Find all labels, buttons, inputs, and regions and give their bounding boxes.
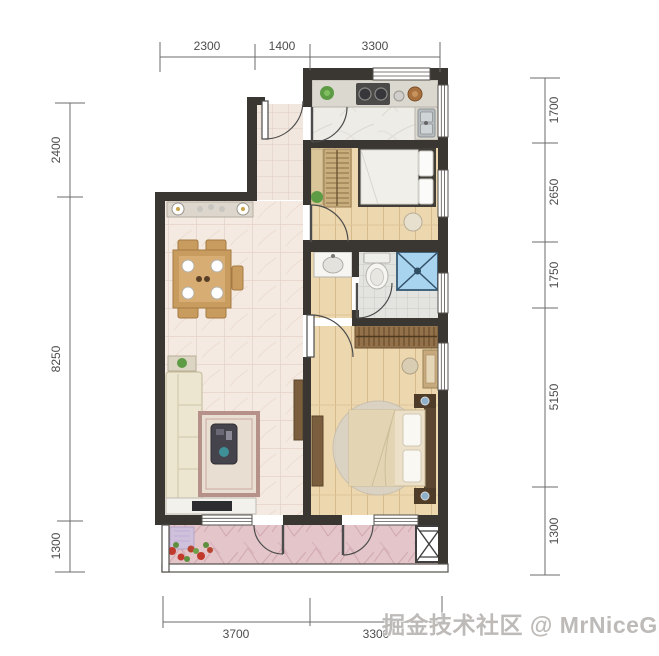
bedroom2-wardrobe bbox=[324, 149, 351, 207]
wall bbox=[303, 242, 311, 315]
balcony-floor bbox=[169, 525, 438, 565]
balcony-parapet-left bbox=[162, 525, 169, 572]
plant-icon bbox=[177, 358, 187, 368]
dim-label: 2400 bbox=[49, 136, 63, 163]
plant-icon bbox=[311, 191, 323, 203]
dim-label: 1400 bbox=[269, 39, 296, 53]
master-bed bbox=[349, 407, 436, 489]
nightstand-top bbox=[414, 394, 436, 408]
wall bbox=[303, 240, 448, 252]
tv-console bbox=[166, 498, 256, 514]
shower-icon bbox=[397, 252, 438, 290]
bedroom2-stool bbox=[404, 213, 422, 231]
window bbox=[438, 343, 448, 390]
dim-label: 8250 bbox=[49, 345, 63, 372]
window bbox=[438, 85, 448, 137]
kitchen-sink-icon bbox=[418, 109, 435, 137]
wall bbox=[303, 68, 373, 80]
watermark-text: 掘金技术社区 @ MrNiceGuy bbox=[382, 606, 659, 640]
balcony-parapet-bottom bbox=[162, 564, 448, 572]
bowl-icon bbox=[394, 91, 404, 101]
dim-label: 5150 bbox=[547, 383, 561, 410]
dim-label: 2300 bbox=[194, 39, 221, 53]
wall bbox=[352, 252, 359, 277]
dim-label: 2650 bbox=[547, 178, 561, 205]
dim-label: 1300 bbox=[49, 532, 63, 559]
master-wardrobe bbox=[355, 325, 438, 348]
stove-icon bbox=[356, 83, 390, 105]
window bbox=[374, 515, 418, 525]
window bbox=[373, 68, 430, 80]
dim-label: 1700 bbox=[547, 96, 561, 123]
wall bbox=[155, 192, 165, 525]
pot-icon bbox=[408, 87, 422, 101]
dimension-right: 1700 2650 1750 5150 1300 bbox=[530, 78, 561, 575]
plant-icon bbox=[320, 86, 334, 100]
wall bbox=[155, 515, 202, 525]
dim-label: 3300 bbox=[362, 39, 389, 53]
stool-icon bbox=[402, 358, 418, 374]
wall bbox=[155, 192, 257, 201]
dim-label: 1300 bbox=[547, 517, 561, 544]
tv-icon bbox=[192, 501, 232, 511]
master-tv-cabinet bbox=[312, 416, 323, 486]
wall bbox=[303, 357, 311, 515]
window bbox=[202, 515, 252, 525]
wall bbox=[283, 515, 342, 525]
dimension-left: 2400 8250 1300 bbox=[49, 103, 85, 572]
dimension-top: 2300 1400 3300 bbox=[160, 39, 440, 72]
window bbox=[438, 170, 448, 217]
vanity-sink-icon bbox=[314, 252, 352, 277]
dim-label: 3700 bbox=[223, 627, 250, 641]
sofa bbox=[166, 372, 202, 502]
dining-table bbox=[173, 250, 231, 308]
coffee-table bbox=[211, 424, 237, 464]
wall bbox=[438, 390, 448, 567]
nightstand-bottom bbox=[414, 488, 436, 504]
wall bbox=[247, 97, 257, 200]
wall bbox=[438, 313, 448, 343]
toilet-icon bbox=[364, 253, 390, 289]
wall bbox=[352, 318, 448, 326]
living-tv-cabinet bbox=[294, 380, 303, 440]
wall bbox=[303, 140, 448, 148]
sideboard bbox=[167, 202, 253, 217]
window bbox=[438, 273, 448, 313]
bedroom2-bed bbox=[358, 147, 436, 207]
dim-label: 1750 bbox=[547, 261, 561, 288]
floor-plan: 2300 1400 3300 2400 8250 1300 1700 2650 … bbox=[0, 0, 659, 651]
wall bbox=[418, 515, 448, 525]
wall bbox=[303, 148, 311, 205]
side-table bbox=[168, 356, 196, 371]
